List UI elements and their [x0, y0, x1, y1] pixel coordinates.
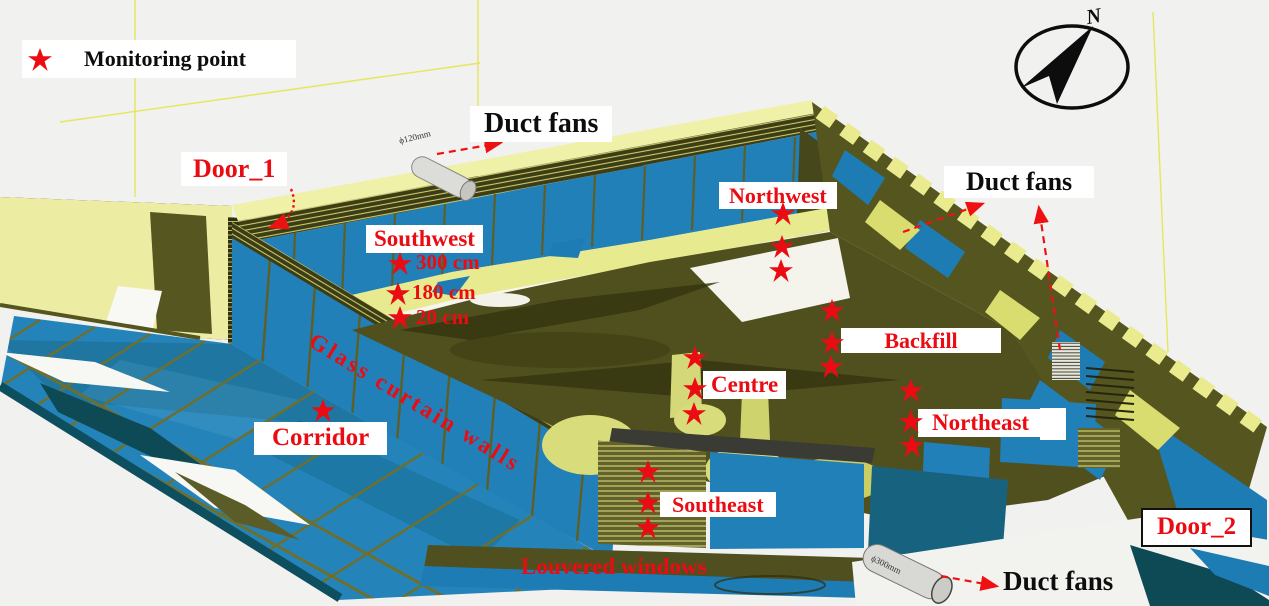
figure-3d-site-model: Monitoring point Duct fans ϕ120mm Door_1… [0, 0, 1269, 606]
label-duct-top-diameter: ϕ120mm [398, 128, 432, 146]
labels-layer: Monitoring point Duct fans ϕ120mm Door_1… [0, 0, 1269, 606]
label-duct-fans-right: Duct fans [944, 166, 1094, 198]
label-northeast: Northeast [918, 409, 1043, 437]
legend-monitoring-point: Monitoring point [22, 40, 296, 78]
compass-north-label: N [1084, 3, 1103, 29]
label-duct-fans-top: Duct fans [470, 106, 612, 142]
label-corridor: Corridor [254, 422, 387, 455]
label-glass-curtain-walls: Glass curtain walls [304, 328, 525, 478]
label-height-300cm: 300 cm [416, 250, 480, 274]
label-height-20cm: 20 cm [416, 305, 469, 329]
label-centre: Centre [703, 371, 786, 399]
label-height-180cm: 180 cm [412, 280, 476, 304]
label-northwest: Northwest [719, 182, 837, 209]
label-backfill: Backfill [841, 328, 1001, 353]
label-door-2: Door_2 [1141, 508, 1252, 547]
label-duct-bottom-diameter: ϕ300mm [869, 553, 903, 576]
label-southeast: Southeast [660, 492, 776, 517]
label-duct-fans-bottom: Duct fans [1003, 566, 1113, 597]
label-door-1: Door_1 [181, 152, 287, 186]
label-louvered-windows: Louvered windows [521, 554, 707, 580]
